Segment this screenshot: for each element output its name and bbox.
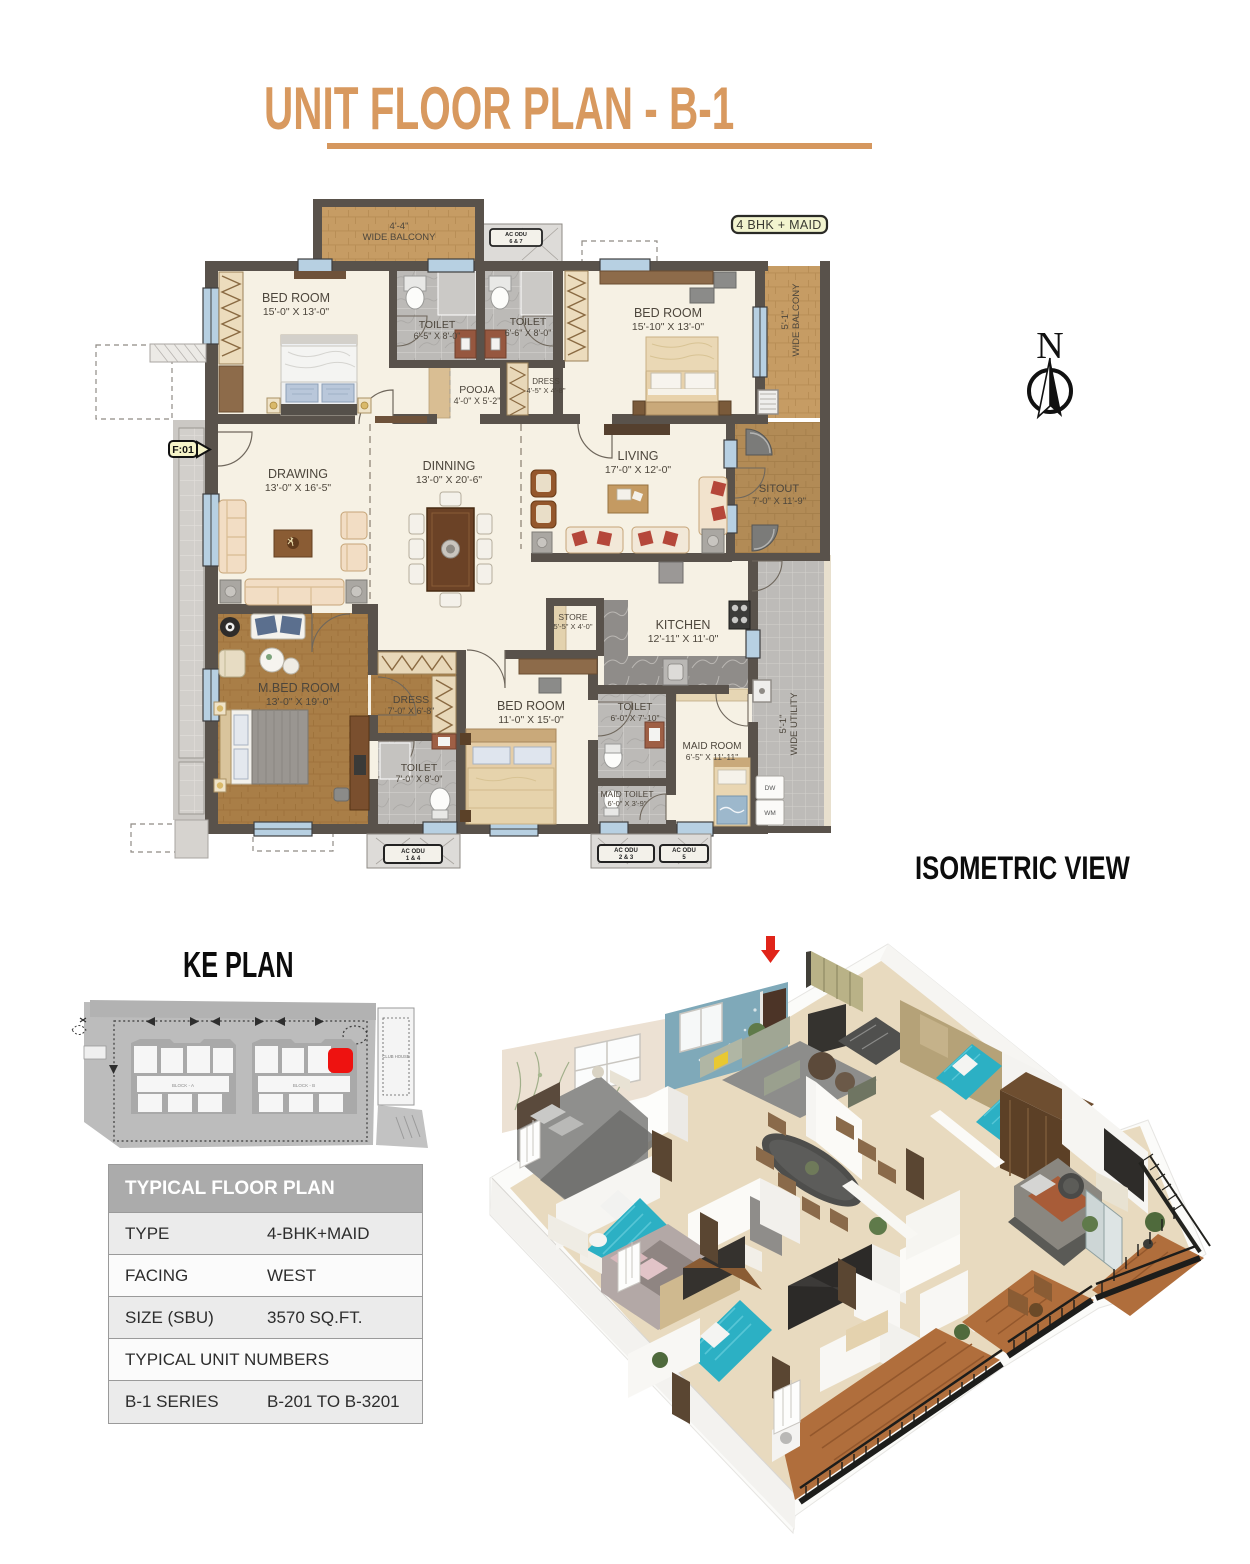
svg-text:CLUB HOUSE: CLUB HOUSE: [382, 1054, 409, 1059]
svg-text:6'-0" X 7'-10": 6'-0" X 7'-10": [611, 713, 660, 723]
svg-text:BED ROOM: BED ROOM: [262, 291, 330, 305]
svg-text:13'-0" X 20'-6": 13'-0" X 20'-6": [416, 474, 483, 486]
svg-text:F:01: F:01: [172, 444, 194, 456]
svg-text:DW: DW: [765, 785, 777, 792]
svg-text:6'-0" X 3'-9": 6'-0" X 3'-9": [607, 799, 646, 808]
svg-text:13'-0" X 16'-5": 13'-0" X 16'-5": [265, 482, 332, 494]
svg-text:4 BHK + MAID: 4 BHK + MAID: [736, 218, 821, 232]
svg-text:6'-6" X 8'-0": 6'-6" X 8'-0": [505, 328, 552, 338]
svg-text:WIDE BALCONY: WIDE BALCONY: [363, 232, 437, 243]
svg-text:DRESS: DRESS: [532, 377, 560, 386]
svg-text:12'-11" X 11'-0": 12'-11" X 11'-0": [648, 633, 719, 645]
svg-text:WM: WM: [764, 810, 776, 817]
svg-text:TOILET: TOILET: [510, 316, 547, 328]
svg-text:TOILET: TOILET: [419, 319, 456, 331]
svg-text:4'-5" X 4'-8": 4'-5" X 4'-8": [526, 386, 565, 395]
svg-text:WIDE BALCONY: WIDE BALCONY: [791, 283, 802, 357]
svg-text:5'-5" X 4'-0": 5'-5" X 4'-0": [553, 622, 592, 631]
svg-text:STORE: STORE: [558, 612, 587, 622]
svg-text:AC ODU: AC ODU: [401, 849, 425, 855]
svg-text:M.BED ROOM: M.BED ROOM: [258, 681, 340, 695]
svg-text:MAID ROOM: MAID ROOM: [683, 741, 742, 752]
svg-text:2 & 3: 2 & 3: [619, 855, 634, 861]
svg-text:TOILET: TOILET: [401, 762, 438, 774]
svg-text:AC ODU: AC ODU: [614, 848, 638, 854]
svg-text:15'-10" X 13'-0": 15'-10" X 13'-0": [632, 321, 704, 333]
svg-text:AC ODU: AC ODU: [672, 848, 696, 854]
svg-text:17'-0" X 12'-0": 17'-0" X 12'-0": [605, 464, 672, 476]
svg-text:15'-0" X 13'-0": 15'-0" X 13'-0": [263, 306, 330, 318]
svg-text:4'-0" X 5'-2": 4'-0" X 5'-2": [454, 396, 501, 406]
svg-text:7'-0" X 11'-9": 7'-0" X 11'-9": [752, 496, 806, 507]
svg-text:5'-1": 5'-1": [778, 715, 789, 734]
svg-text:BED ROOM: BED ROOM: [497, 699, 565, 713]
svg-text:6'-5" X 11'-11": 6'-5" X 11'-11": [686, 752, 738, 762]
svg-text:DINNING: DINNING: [423, 459, 476, 473]
svg-text:7'-0" X 6'-8": 7'-0" X 6'-8": [388, 706, 435, 716]
svg-text:BED ROOM: BED ROOM: [634, 306, 702, 320]
svg-text:AC ODU: AC ODU: [505, 232, 527, 238]
svg-text:DRAWING: DRAWING: [268, 467, 328, 481]
svg-text:KITCHEN: KITCHEN: [656, 618, 711, 632]
svg-text:POOJA: POOJA: [459, 384, 495, 396]
svg-text:MAID TOILET: MAID TOILET: [600, 789, 653, 799]
svg-text:6'-5" X 8'-0": 6'-5" X 8'-0": [414, 331, 461, 341]
svg-text:4'-4": 4'-4": [390, 221, 409, 232]
svg-text:BLOCK - A: BLOCK - A: [172, 1083, 194, 1088]
svg-text:13'-0" X 19'-0": 13'-0" X 19'-0": [266, 696, 333, 708]
svg-text:LIVING: LIVING: [618, 449, 659, 463]
svg-text:6 & 7: 6 & 7: [509, 239, 522, 245]
svg-text:1 & 4: 1 & 4: [406, 856, 421, 862]
svg-text:7'-0" X 8'-0": 7'-0" X 8'-0": [396, 774, 443, 784]
svg-text:TOILET: TOILET: [618, 702, 653, 713]
svg-text:BLOCK - B: BLOCK - B: [293, 1083, 315, 1088]
svg-text:SITOUT: SITOUT: [759, 483, 799, 495]
svg-text:WIDE UTILITY: WIDE UTILITY: [789, 692, 800, 755]
svg-text:DRESS: DRESS: [393, 694, 429, 706]
svg-text:11'-0" X 15'-0": 11'-0" X 15'-0": [498, 714, 564, 726]
svg-text:5'-1": 5'-1": [780, 311, 791, 330]
